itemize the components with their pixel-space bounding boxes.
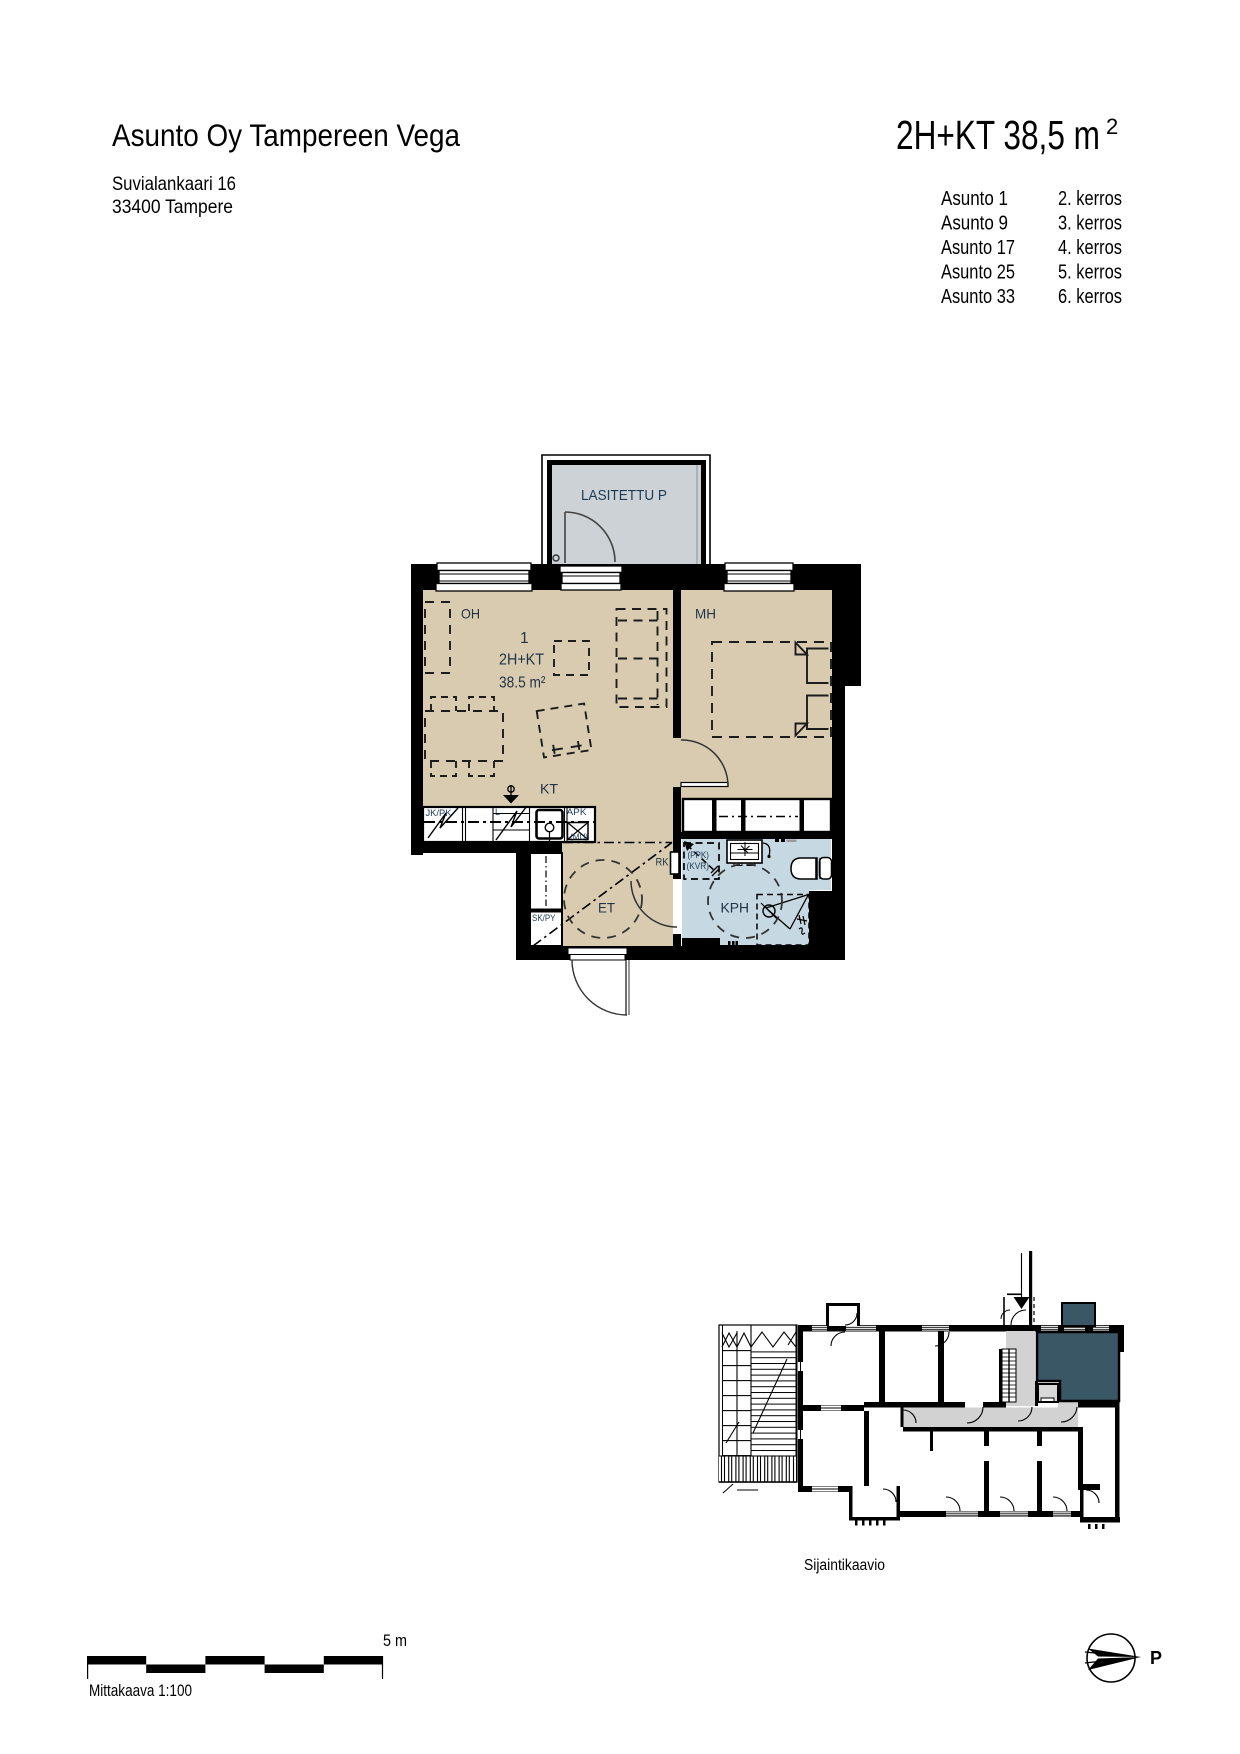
svg-text:38.5 m²: 38.5 m² (499, 675, 546, 692)
svg-text:5. kerros: 5. kerros (1058, 262, 1122, 284)
svg-text:Asunto 9: Asunto 9 (941, 213, 1008, 235)
svg-text:2H+KT 38,5 m: 2H+KT 38,5 m (896, 112, 1100, 158)
svg-text:ET: ET (598, 900, 615, 916)
svg-text:APK: APK (567, 807, 588, 818)
svg-text:MH: MH (695, 606, 716, 622)
svg-text:LASITETTU P: LASITETTU P (581, 488, 667, 504)
svg-text:Mittakaava 1:100: Mittakaava 1:100 (89, 1682, 192, 1700)
svg-text:KPH: KPH (721, 900, 750, 916)
svg-text:Asunto Oy Tampereen Vega: Asunto Oy Tampereen Vega (112, 117, 460, 153)
svg-text:Asunto 25: Asunto 25 (941, 262, 1015, 284)
svg-text:1: 1 (520, 630, 529, 647)
svg-text:JK/PK: JK/PK (426, 808, 453, 819)
svg-text:(MU): (MU) (570, 832, 588, 842)
svg-text:(PPK): (PPK) (688, 850, 710, 860)
svg-text:33400 Tampere: 33400 Tampere (112, 196, 233, 218)
svg-text:Asunto 1: Asunto 1 (941, 188, 1008, 210)
svg-text:Asunto 33: Asunto 33 (941, 286, 1015, 308)
svg-text:KT: KT (540, 781, 558, 797)
svg-text:5 m: 5 m (383, 1631, 407, 1650)
svg-text:RK: RK (656, 857, 670, 869)
svg-text:2H+KT: 2H+KT (499, 652, 544, 669)
svg-text:4. kerros: 4. kerros (1058, 237, 1122, 259)
svg-text:Sijaintikaavio: Sijaintikaavio (804, 1557, 885, 1574)
svg-text:Asunto 17: Asunto 17 (941, 237, 1015, 259)
svg-text:OH: OH (461, 606, 480, 622)
svg-text:P: P (1150, 1648, 1162, 1668)
svg-text:L: L (495, 807, 500, 817)
svg-text:SK/PY: SK/PY (532, 913, 556, 924)
svg-text:6. kerros: 6. kerros (1058, 286, 1122, 308)
svg-text:2: 2 (1106, 114, 1118, 139)
svg-text:Suvialankaari 16: Suvialankaari 16 (112, 173, 236, 195)
svg-text:(KVR): (KVR) (687, 861, 710, 871)
svg-text:2. kerros: 2. kerros (1058, 188, 1122, 210)
svg-text:3. kerros: 3. kerros (1058, 213, 1122, 235)
